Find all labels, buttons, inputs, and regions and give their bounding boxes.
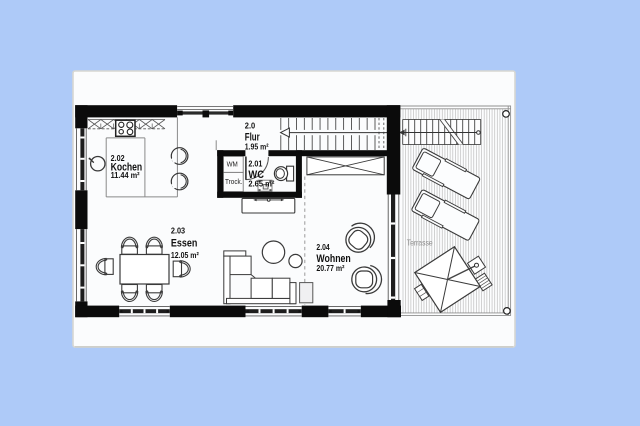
- svg-text:1.95 m²: 1.95 m²: [245, 141, 269, 151]
- svg-text:Terrasse: Terrasse: [407, 238, 433, 247]
- svg-text:20.77 m²: 20.77 m²: [316, 263, 344, 273]
- svg-text:2.0: 2.0: [245, 121, 256, 131]
- svg-text:WM: WM: [227, 162, 238, 169]
- svg-text:Trock.: Trock.: [225, 179, 243, 186]
- svg-text:2.01: 2.01: [248, 159, 262, 169]
- svg-text:2.65 m²: 2.65 m²: [248, 179, 274, 189]
- svg-text:2.04: 2.04: [316, 242, 329, 252]
- svg-text:Essen: Essen: [171, 237, 198, 249]
- svg-text:11.44 m²: 11.44 m²: [111, 170, 140, 180]
- svg-text:12.05 m²: 12.05 m²: [171, 250, 199, 260]
- svg-text:2.03: 2.03: [171, 225, 185, 235]
